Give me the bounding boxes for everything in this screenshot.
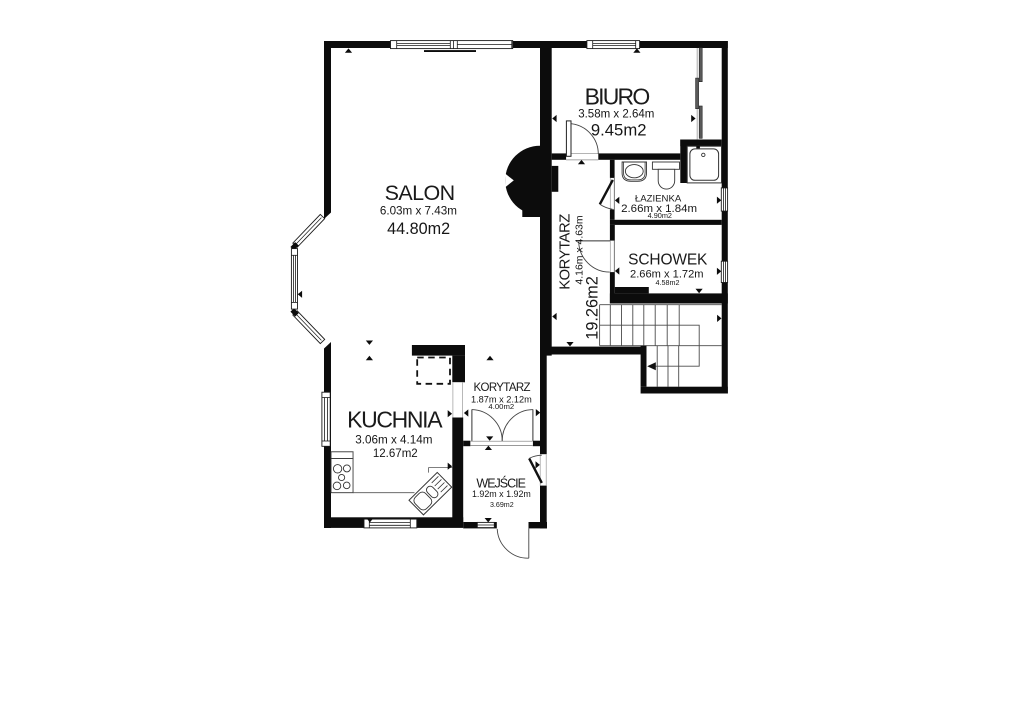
svg-text:9.45m2: 9.45m2 (591, 121, 647, 140)
svg-text:12.67m2: 12.67m2 (373, 448, 418, 460)
svg-text:4.90m2: 4.90m2 (648, 211, 672, 220)
svg-text:SALON: SALON (385, 181, 455, 205)
svg-text:4.58m2: 4.58m2 (656, 278, 680, 287)
svg-text:KUCHNIA: KUCHNIA (347, 407, 443, 433)
svg-text:SCHOWEK: SCHOWEK (628, 251, 708, 268)
svg-text:4.00m2: 4.00m2 (488, 402, 514, 411)
svg-text:3.06m x 4.14m: 3.06m x 4.14m (355, 434, 432, 447)
svg-text:4.16m x 4.63m: 4.16m x 4.63m (575, 215, 586, 284)
svg-text:3.69m2: 3.69m2 (490, 501, 514, 509)
svg-text:1.92m x 1.92m: 1.92m x 1.92m (472, 489, 531, 499)
svg-text:6.03m x 7.43m: 6.03m x 7.43m (380, 205, 457, 218)
svg-text:BIURO: BIURO (585, 83, 650, 109)
svg-text:3.58m x 2.64m: 3.58m x 2.64m (578, 109, 654, 121)
svg-text:44.80m2: 44.80m2 (387, 220, 450, 238)
svg-text:KORYTARZ: KORYTARZ (558, 214, 574, 290)
svg-text:19.26m2: 19.26m2 (583, 276, 601, 340)
svg-text:KORYTARZ: KORYTARZ (474, 382, 531, 394)
